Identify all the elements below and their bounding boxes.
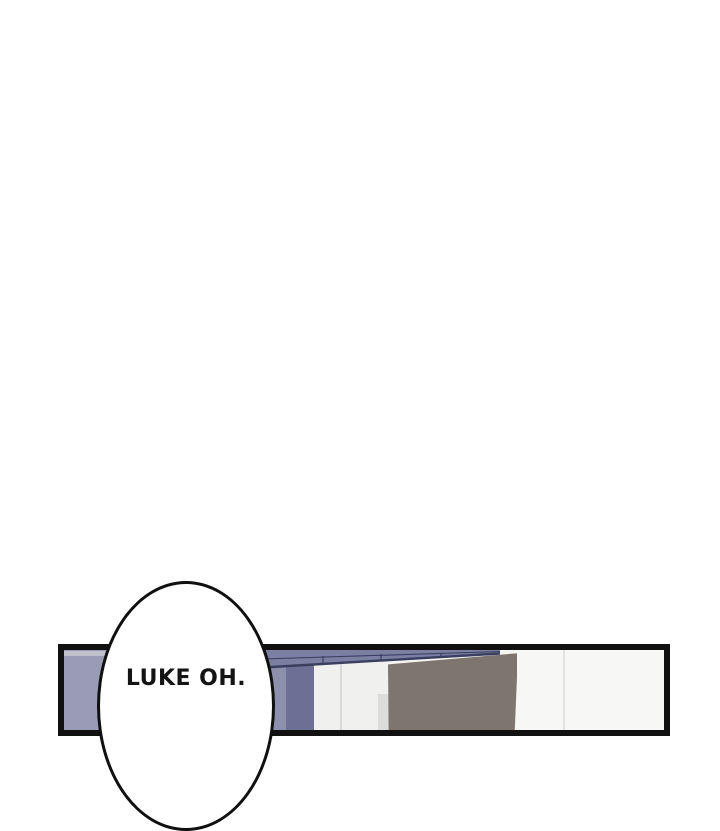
ceiling-beam [263,650,500,672]
right-wall [517,650,664,730]
speech-bubble: LUKE OH. [97,581,275,831]
comic-page-background: LUKE OH. [0,0,720,700]
speech-bubble-text: LUKE OH. [100,666,272,691]
right-wall-seam [563,650,565,730]
